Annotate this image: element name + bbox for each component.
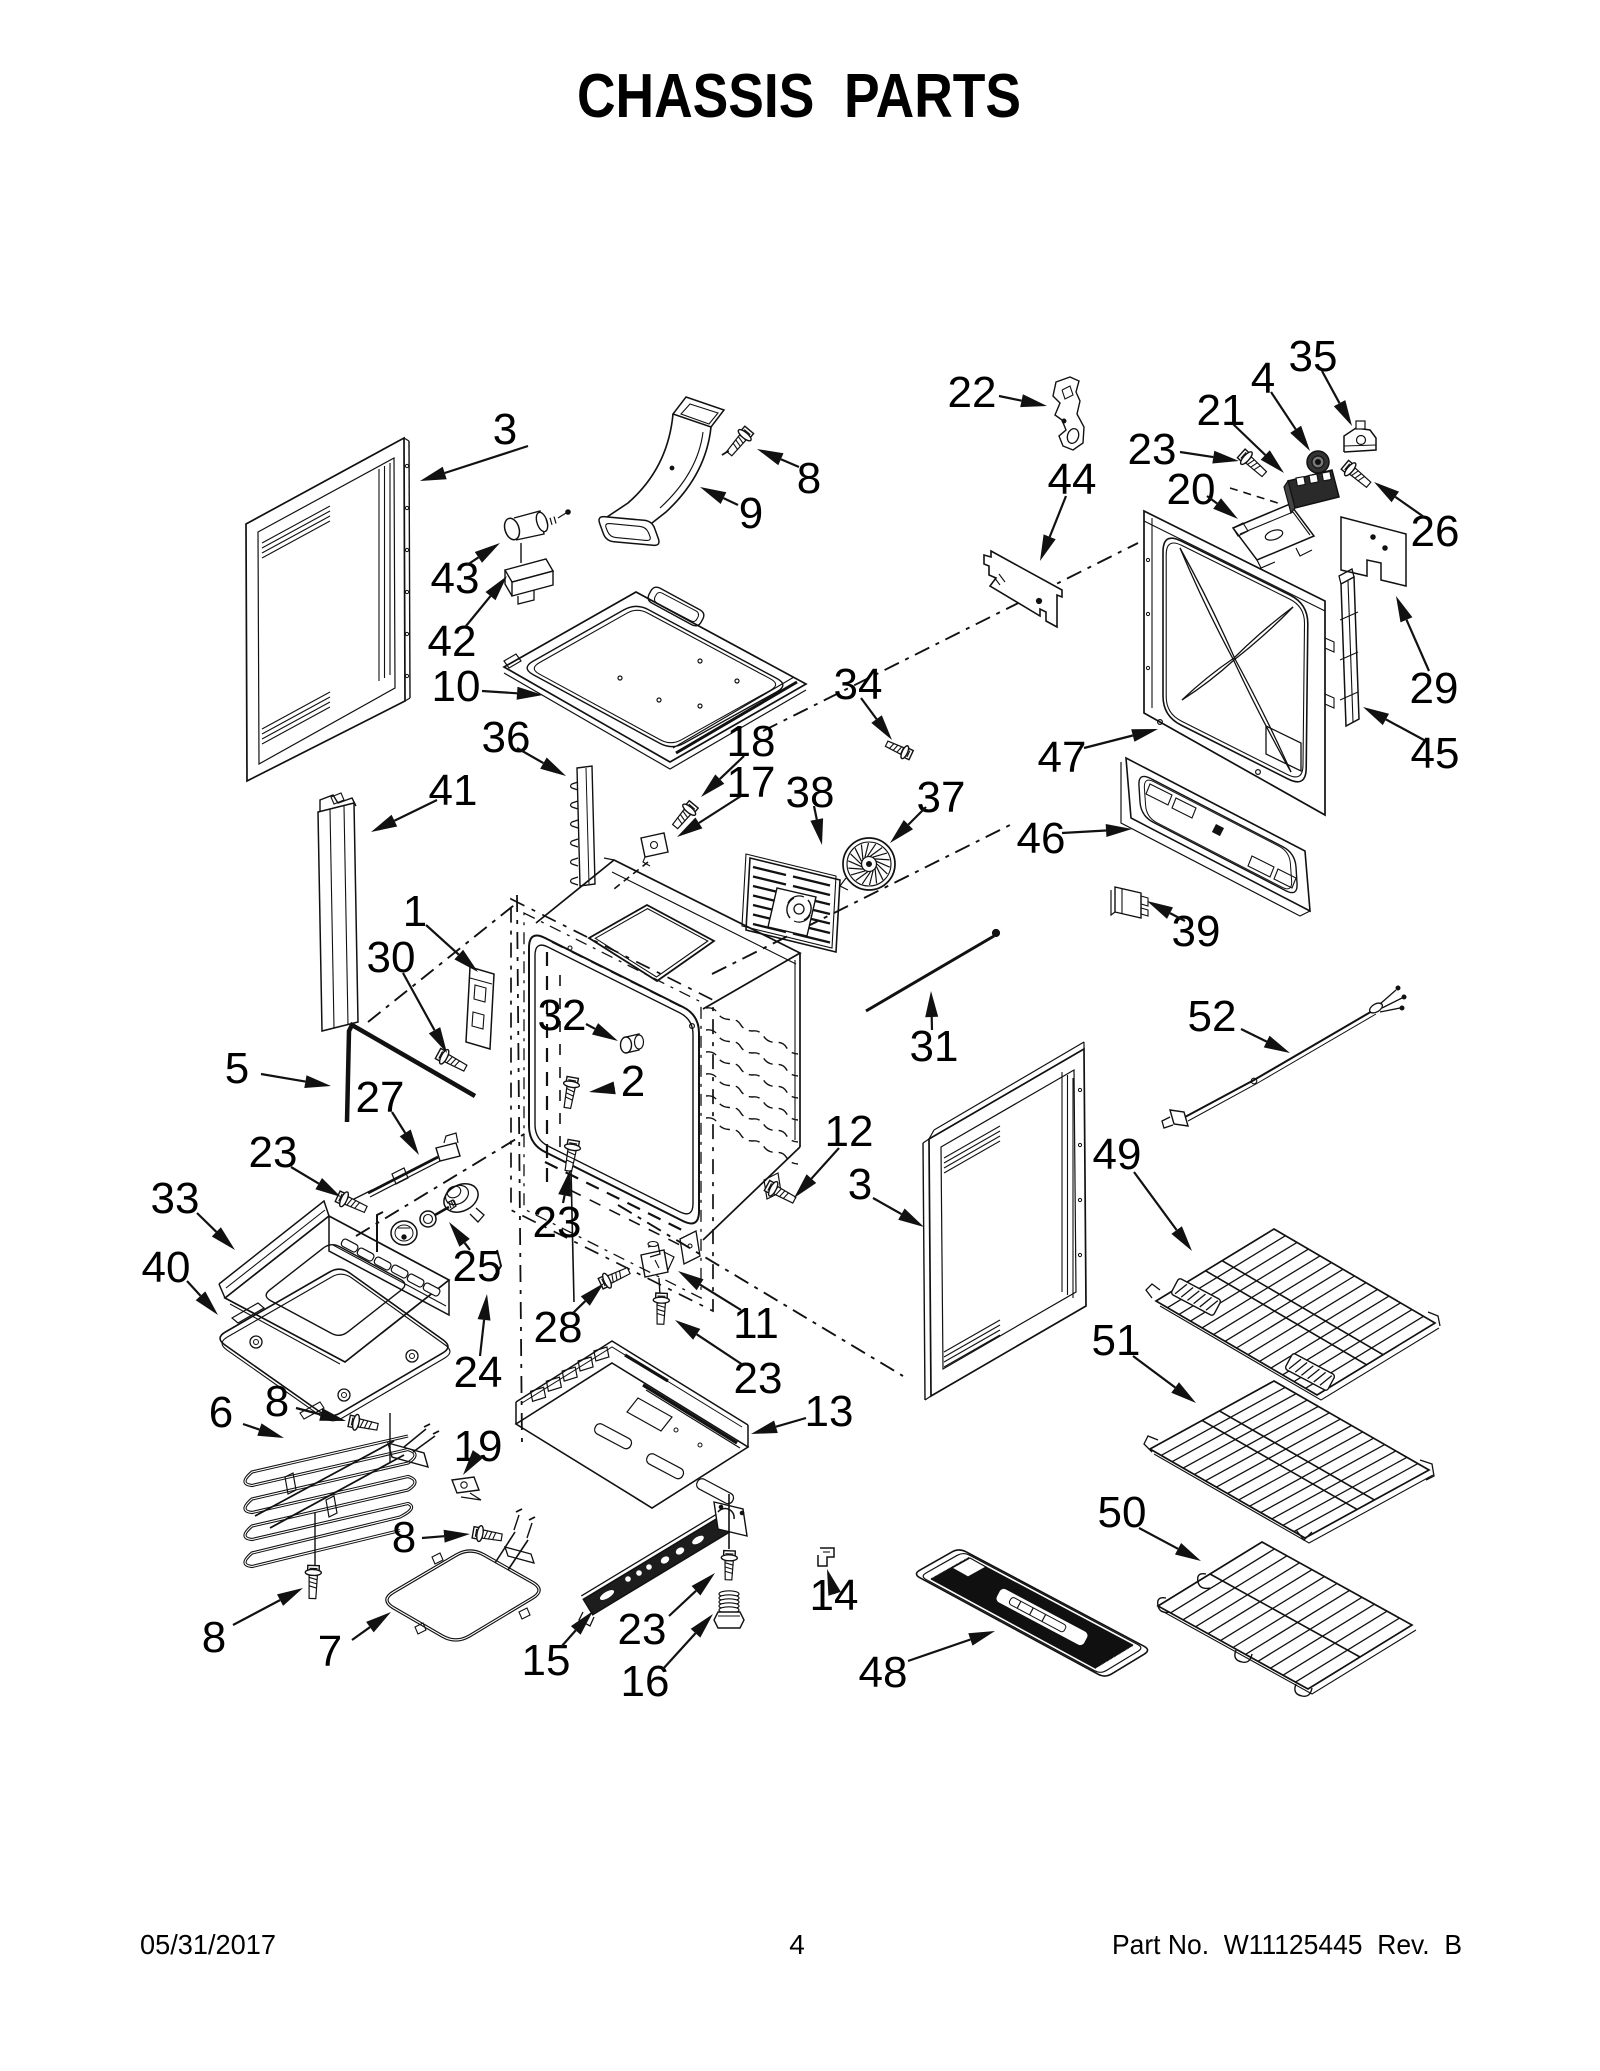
- svg-text:12: 12: [825, 1107, 874, 1156]
- svg-text:8: 8: [265, 1377, 289, 1426]
- svg-text:3: 3: [848, 1160, 872, 1209]
- svg-text:32: 32: [538, 991, 587, 1040]
- svg-text:9: 9: [739, 489, 763, 538]
- svg-text:23: 23: [1128, 425, 1177, 474]
- svg-text:1: 1: [403, 887, 427, 936]
- svg-text:36: 36: [482, 713, 531, 762]
- svg-text:24: 24: [454, 1348, 503, 1397]
- svg-text:25: 25: [453, 1242, 502, 1291]
- svg-text:4: 4: [1251, 354, 1275, 403]
- svg-text:50: 50: [1098, 1488, 1147, 1537]
- svg-text:29: 29: [1410, 664, 1459, 713]
- svg-text:5: 5: [225, 1044, 249, 1093]
- svg-text:51: 51: [1092, 1316, 1141, 1365]
- svg-text:05/31/2017: 05/31/2017: [140, 1929, 276, 1960]
- svg-text:31: 31: [910, 1022, 959, 1071]
- svg-text:13: 13: [805, 1387, 854, 1436]
- svg-text:33: 33: [151, 1174, 200, 1223]
- svg-text:48: 48: [859, 1648, 908, 1697]
- svg-text:23: 23: [249, 1128, 298, 1177]
- svg-text:14: 14: [810, 1571, 859, 1620]
- svg-text:34: 34: [834, 660, 883, 709]
- svg-text:49: 49: [1093, 1130, 1142, 1179]
- svg-text:23: 23: [734, 1354, 783, 1403]
- svg-text:38: 38: [786, 768, 835, 817]
- svg-text:8: 8: [392, 1513, 416, 1562]
- svg-text:3: 3: [493, 405, 517, 454]
- svg-text:40: 40: [142, 1243, 191, 1292]
- svg-text:8: 8: [797, 454, 821, 503]
- svg-text:46: 46: [1017, 814, 1066, 863]
- svg-text:23: 23: [618, 1605, 667, 1654]
- svg-text:26: 26: [1411, 507, 1460, 556]
- svg-text:41: 41: [429, 766, 478, 815]
- svg-text:52: 52: [1188, 992, 1237, 1041]
- svg-text:27: 27: [356, 1073, 405, 1122]
- svg-text:35: 35: [1289, 332, 1338, 381]
- svg-text:19: 19: [454, 1422, 503, 1471]
- svg-text:23: 23: [533, 1198, 582, 1247]
- svg-text:44: 44: [1048, 455, 1097, 504]
- svg-text:8: 8: [202, 1613, 226, 1662]
- svg-text:16: 16: [621, 1657, 670, 1706]
- svg-text:7: 7: [318, 1627, 342, 1676]
- svg-text:39: 39: [1172, 907, 1221, 956]
- svg-text:42: 42: [428, 617, 477, 666]
- svg-text:4: 4: [789, 1929, 805, 1960]
- svg-text:CHASSIS PARTS: CHASSIS PARTS: [577, 62, 1021, 131]
- svg-text:47: 47: [1038, 733, 1087, 782]
- svg-text:22: 22: [948, 368, 997, 417]
- svg-text:11: 11: [733, 1299, 779, 1348]
- svg-text:Part No. W11125445 Rev. B: Part No. W11125445 Rev. B: [1112, 1929, 1462, 1960]
- svg-text:10: 10: [432, 662, 481, 711]
- svg-text:2: 2: [621, 1057, 645, 1106]
- svg-text:37: 37: [917, 773, 966, 822]
- svg-text:6: 6: [209, 1388, 233, 1437]
- svg-text:30: 30: [367, 933, 416, 982]
